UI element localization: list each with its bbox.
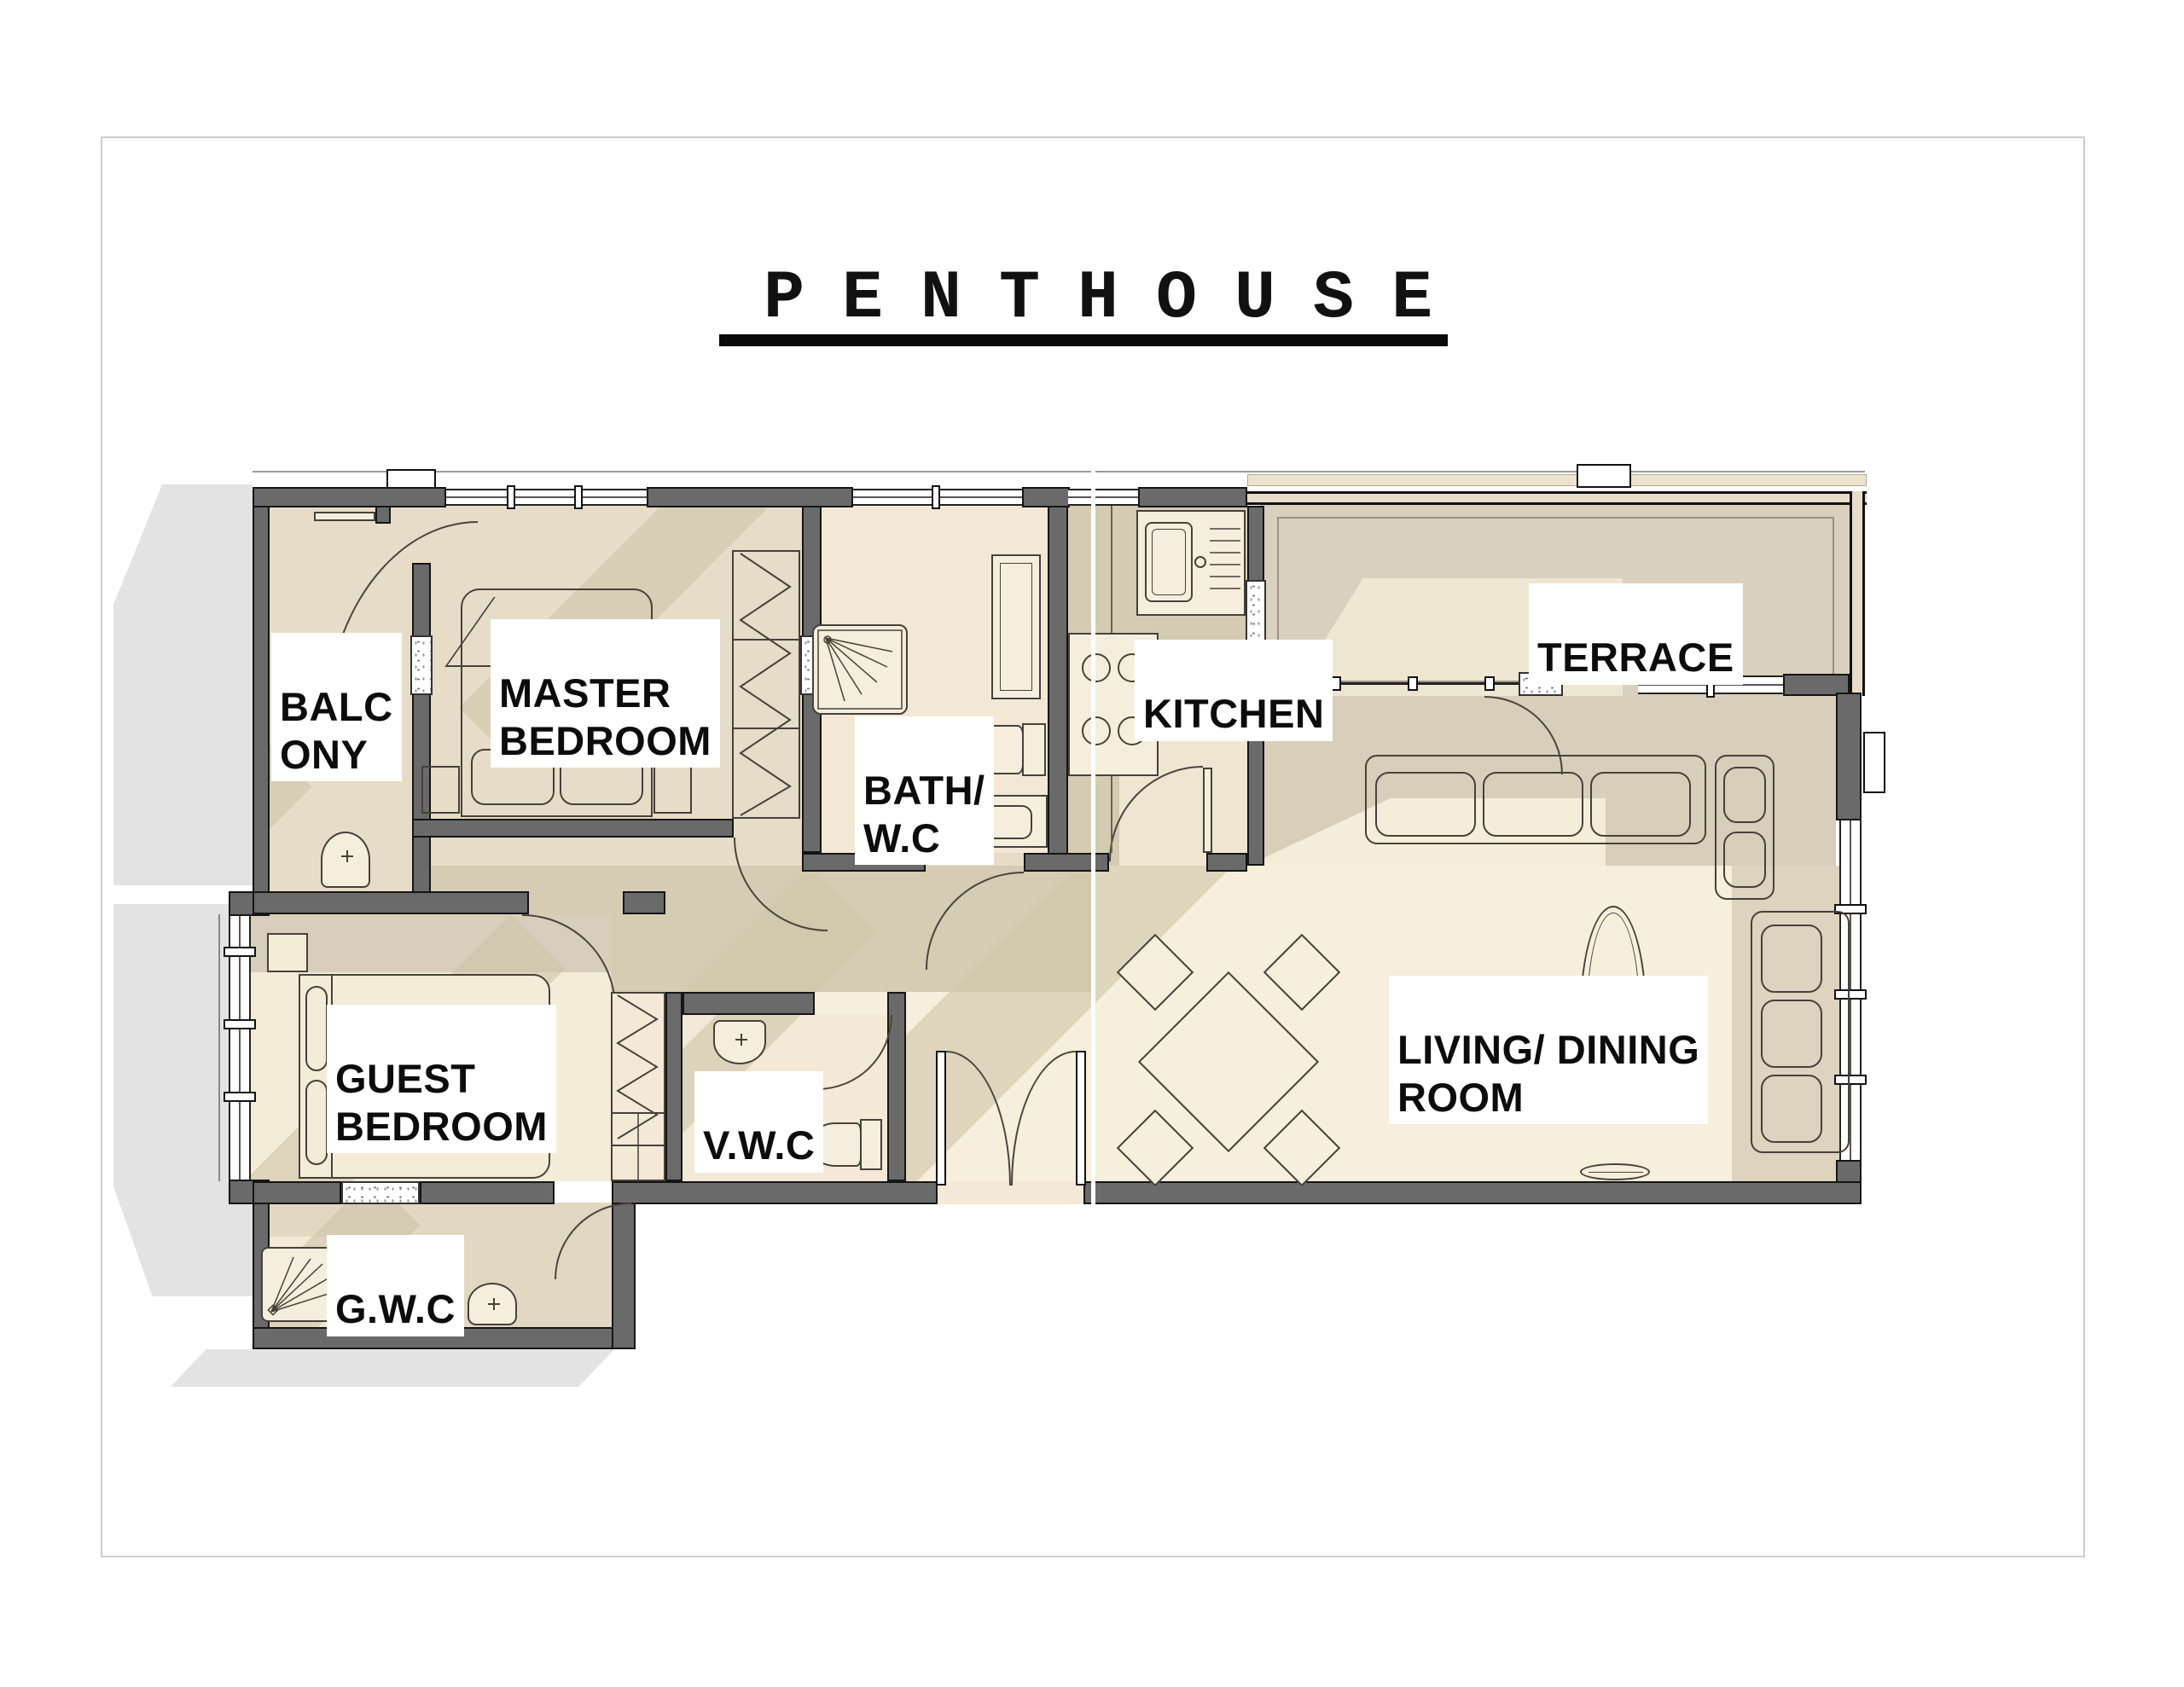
toilet-icon xyxy=(1022,723,1046,776)
window-sill-icon xyxy=(341,1181,420,1204)
bottom-wall xyxy=(612,1181,938,1204)
top-wall-segment xyxy=(647,487,853,507)
sofa-icon xyxy=(1365,755,1706,844)
corner-sofa-icon xyxy=(1715,755,1774,900)
toilet-icon xyxy=(468,1283,517,1325)
bath-kitchen-bottom-wall xyxy=(1206,853,1247,872)
washbasin-icon xyxy=(321,832,370,888)
toilet-icon xyxy=(860,1119,882,1170)
door-leaf xyxy=(1203,768,1212,853)
door-leaf xyxy=(314,512,375,521)
room-label-terrace: TERRACE xyxy=(1529,583,1743,685)
wardrobe-icon xyxy=(732,550,800,819)
chimney-icon xyxy=(1577,464,1631,488)
window-icon xyxy=(1068,489,1140,506)
window-sill-tick xyxy=(224,947,256,957)
room-label-gwc: G.W.C xyxy=(327,1235,464,1336)
title-underline xyxy=(719,334,1448,346)
kitchen-sink-icon xyxy=(1136,510,1246,616)
top-wall-segment xyxy=(253,487,446,507)
room-label-balcony: BALCONY xyxy=(271,633,402,781)
window-outer-line xyxy=(218,914,220,1181)
window-mullion xyxy=(507,485,515,509)
room-label-guest-bedroom: GUESTBEDROOM xyxy=(327,1005,556,1153)
window-sill-icon xyxy=(1246,580,1266,648)
room-label-living-dining: LIVING/ DININGROOM xyxy=(1389,976,1708,1124)
bath-right-wall xyxy=(1048,506,1068,872)
floor-plan-page: PENTHOUSE xyxy=(0,0,2184,1687)
double-entry-door-icon xyxy=(1076,1051,1086,1186)
window-sill-box xyxy=(1863,732,1885,793)
nightstand-icon xyxy=(421,766,460,814)
double-entry-door-icon xyxy=(936,1051,946,1186)
room-label-bath-wc: BATH/W.C xyxy=(855,716,994,865)
window-mullion xyxy=(932,485,940,509)
shower-icon xyxy=(812,624,908,715)
room-label-master-bedroom: MASTERBEDROOM xyxy=(491,619,720,768)
bath-kitchen-bottom-wall xyxy=(1024,853,1109,872)
room-label-vwc: V.W.C xyxy=(694,1071,823,1173)
railing-post xyxy=(1484,676,1495,691)
terrace-eave-strip xyxy=(1247,474,1867,486)
living-right-wall xyxy=(1836,693,1862,820)
sofa-icon xyxy=(1751,911,1850,1153)
washbasin-icon xyxy=(713,1020,766,1064)
balcony-guest-wall xyxy=(623,891,665,914)
top-wall-segment xyxy=(1138,487,1247,507)
wardrobe-icon xyxy=(611,992,665,1181)
bottom-wall xyxy=(1083,1181,1862,1204)
page-title: PENTHOUSE xyxy=(764,260,1470,338)
window-icon xyxy=(446,489,647,506)
window-sill-tick xyxy=(224,1092,256,1102)
vwc-top-wall xyxy=(682,992,815,1015)
master-bottom-wall xyxy=(412,819,734,838)
bath-cabinet xyxy=(991,554,1041,699)
railing-icon xyxy=(1247,491,1867,505)
gwc-top-wall xyxy=(253,1181,341,1204)
nightstand-icon xyxy=(653,766,692,814)
balcony-door-pier xyxy=(375,506,391,524)
exterior-shadow-bottom xyxy=(171,1349,614,1387)
railing-post xyxy=(1408,676,1418,691)
plate-icon xyxy=(1580,1163,1650,1180)
vwc-left-wall xyxy=(665,992,682,1181)
balcony-left-wall xyxy=(253,506,270,914)
window-mullion xyxy=(574,485,583,509)
nightstand-icon xyxy=(267,933,308,972)
chimney-icon xyxy=(386,469,436,489)
room-label-kitchen: KITCHEN xyxy=(1135,640,1333,741)
window-sill-tick xyxy=(224,1019,256,1029)
page-split-line xyxy=(1091,461,1095,1377)
balcony-guest-wall xyxy=(253,891,529,914)
top-wall-segment xyxy=(1022,487,1070,507)
railing-icon xyxy=(1850,491,1865,696)
